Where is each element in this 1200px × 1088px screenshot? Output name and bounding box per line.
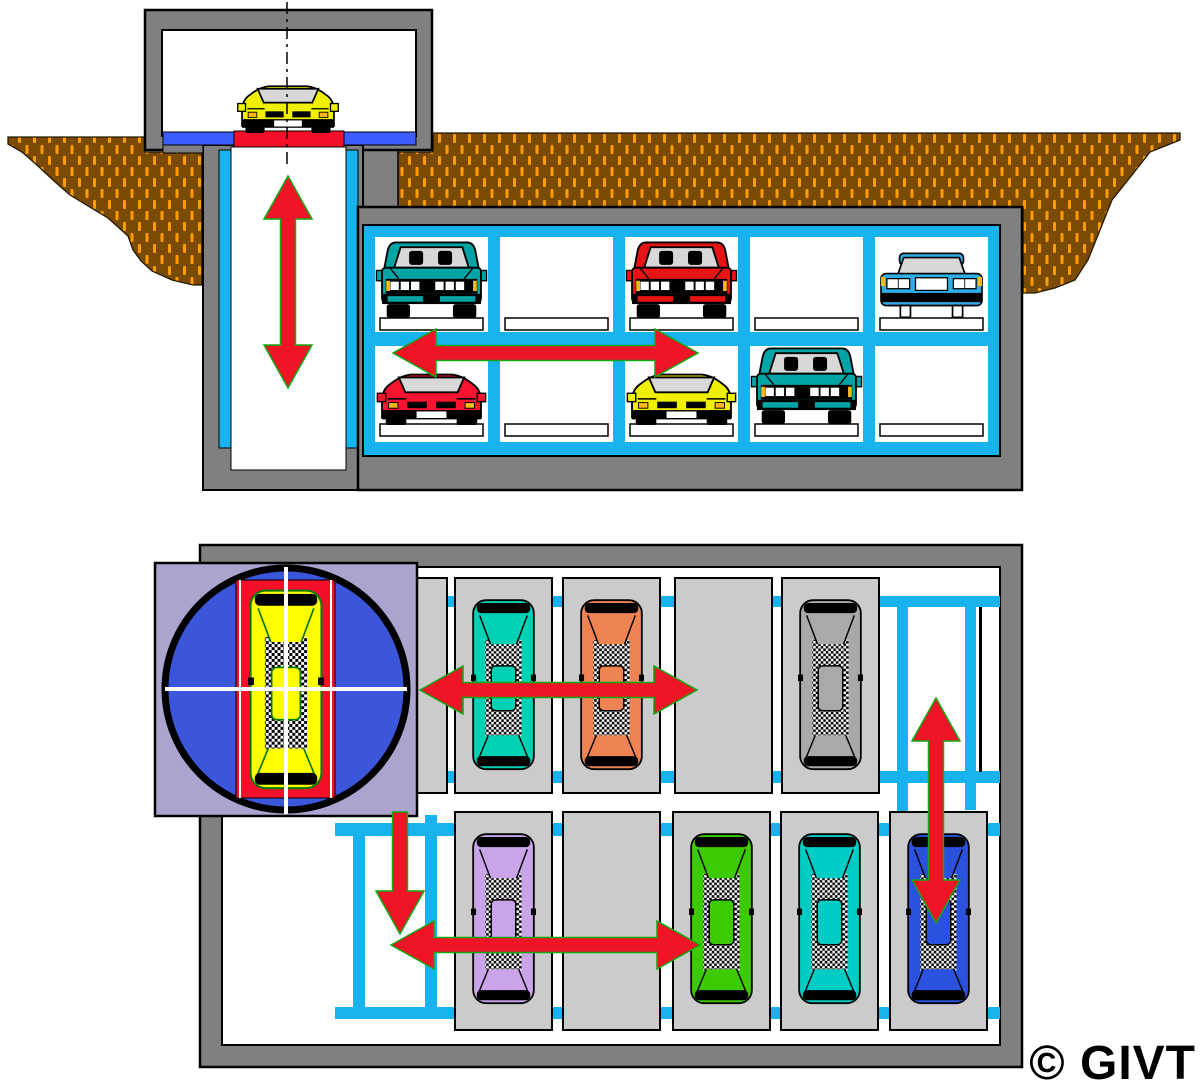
pallet-r0-c2 xyxy=(630,318,733,330)
car-yellow-sports-lower-3 xyxy=(627,375,735,425)
pallet-r0-c4 xyxy=(880,318,983,330)
turntable-crosshair-h xyxy=(165,687,407,691)
plan-car-gray xyxy=(798,600,863,769)
diagram-scene xyxy=(0,0,1200,1088)
pallet-r1-c4 xyxy=(880,424,983,436)
guide-v-shuttle-left xyxy=(353,823,365,1019)
guide-v-shuttle-right xyxy=(425,815,437,1019)
parking-system-diagram: © GIVT xyxy=(0,0,1200,1088)
pallet-r1-c2 xyxy=(630,424,733,436)
car-red-sports-lower-1 xyxy=(377,375,485,425)
plan-car-teal-2 xyxy=(797,834,862,1003)
stall-l2-empty xyxy=(563,812,660,1030)
shaft-rail-left xyxy=(219,150,231,448)
plan-car-purple xyxy=(471,834,536,1003)
pallet-r0-c0 xyxy=(380,318,483,330)
cross-section-view xyxy=(8,2,1180,490)
lift-rail-mark xyxy=(979,607,982,772)
entrance-floor-right xyxy=(344,132,416,145)
pallet-r1-c1 xyxy=(505,424,608,436)
pallet-r0-c3 xyxy=(755,318,858,330)
car-yellow-sports-entrance xyxy=(238,86,339,133)
guide-v-lift-right xyxy=(965,596,976,810)
pallet-r0-c1 xyxy=(505,318,608,330)
elevator-platform xyxy=(234,131,344,147)
shaft-rail-right xyxy=(346,150,358,448)
plan-view xyxy=(155,545,1022,1067)
copyright-watermark: © GIVT xyxy=(1029,1040,1196,1088)
entrance-floor-left xyxy=(163,132,234,145)
earth-surface-left xyxy=(8,137,202,285)
pallet-r1-c3 xyxy=(755,424,858,436)
plan-car-green xyxy=(689,834,754,1003)
pallet-r1-c0 xyxy=(380,424,483,436)
